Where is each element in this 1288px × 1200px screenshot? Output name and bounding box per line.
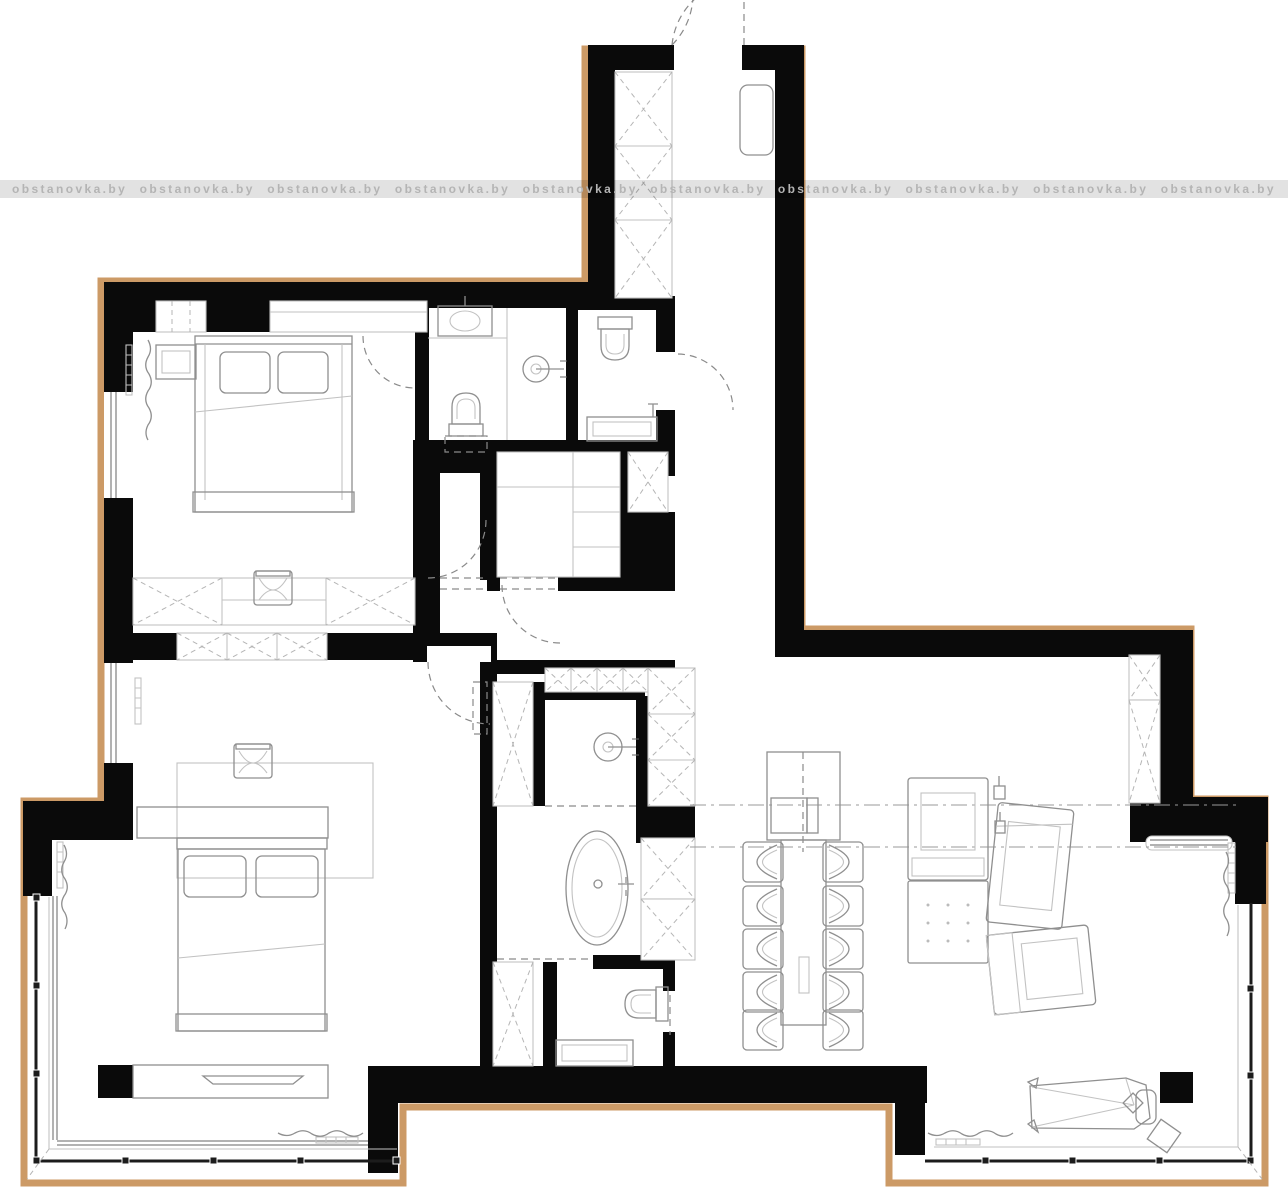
- toilet: [625, 987, 668, 1021]
- dining-table: [781, 840, 826, 1025]
- closet-x-small: [628, 452, 668, 512]
- toilet: [449, 393, 483, 436]
- nightstand: [156, 345, 196, 379]
- tv-console: [133, 1065, 328, 1098]
- door-swing: [678, 354, 733, 410]
- bedroom2-shelf: [177, 633, 327, 660]
- wall-niches: [156, 301, 427, 332]
- rug: [177, 763, 373, 878]
- washbasin-long: [587, 404, 658, 441]
- kitchen-upper-cabinets: [545, 668, 695, 806]
- entry-hall: [740, 85, 773, 155]
- dining-chairs: [743, 842, 863, 1050]
- bathroom1: [428, 296, 567, 452]
- terrace-right: [925, 903, 1262, 1179]
- watermark-text: obstanovka.by: [140, 182, 255, 196]
- curtain-squiggle: [1224, 852, 1230, 936]
- bathtub: [566, 831, 634, 945]
- entry-door: [672, 0, 744, 45]
- chaise-longue: [1028, 1078, 1181, 1153]
- watermark-text: obstanovka.by: [650, 182, 765, 196]
- watermark-text: obstanovka.by: [395, 182, 510, 196]
- kitchen-island: [767, 752, 840, 852]
- curtain-squiggle: [146, 340, 152, 440]
- bedroom1-furniture: [156, 336, 354, 605]
- closet-beside-tub: [641, 838, 695, 960]
- bath-closet-tall: [493, 682, 533, 806]
- shower-head: [594, 733, 639, 761]
- floor-lamp-icon: [994, 776, 1005, 799]
- shower-head: [523, 356, 567, 382]
- window-balcony-west: [53, 896, 57, 1140]
- living-room-furniture: [908, 776, 1096, 1015]
- radiator: [1228, 843, 1235, 893]
- bath-closet-lower: [493, 962, 533, 1066]
- toilet: [598, 317, 632, 360]
- ottoman: [908, 881, 988, 963]
- curtain-squiggle: [278, 1131, 363, 1137]
- window-east-living: [1146, 836, 1232, 850]
- radiator: [135, 678, 141, 724]
- balcony-pillar-left: [98, 1065, 133, 1098]
- stool: [234, 744, 272, 778]
- watermark-text: obstanovka.by: [523, 182, 638, 196]
- terrace-pillar-right: [1160, 1072, 1193, 1103]
- watermark-text: obstanovka.by: [12, 182, 127, 196]
- vanity: [556, 1040, 633, 1066]
- door-swing: [363, 336, 415, 388]
- watermark-band: obstanovka.by obstanovka.by obstanovka.b…: [0, 180, 1288, 198]
- bedroom1-wardrobe: [133, 578, 415, 625]
- watermark-text: obstanovka.by: [267, 182, 382, 196]
- radiator: [316, 1137, 358, 1143]
- double-bed: [176, 849, 327, 1031]
- balcony-left: [27, 894, 400, 1179]
- closet-right-wing: [1129, 655, 1160, 803]
- door-swing: [502, 585, 560, 643]
- radiator: [936, 1139, 980, 1145]
- floor-plan-page: obstanovka.by obstanovka.by obstanovka.b…: [0, 0, 1288, 1200]
- lounge-chair: [908, 778, 988, 880]
- watermark-text: obstanovka.by: [1033, 182, 1148, 196]
- doormat: [740, 85, 773, 155]
- lounge-chair: [986, 925, 1096, 1015]
- hall-closet-shelves: [497, 452, 620, 577]
- watermark-text: obstanovka.by: [905, 182, 1020, 196]
- console-desk: [137, 807, 328, 849]
- curtain-squiggle: [928, 1131, 1013, 1137]
- watermark-text: obstanovka.by: [778, 182, 893, 196]
- wc2: [556, 987, 668, 1066]
- double-bed: [193, 336, 354, 512]
- window-west-bedroom1: [104, 392, 133, 498]
- bedroom2-furniture: [133, 682, 487, 1098]
- watermark-text: obstanovka.by: [1161, 182, 1276, 196]
- window-west-bedroom2: [111, 663, 116, 763]
- bathroom2: [566, 733, 639, 945]
- wc1: [587, 317, 658, 441]
